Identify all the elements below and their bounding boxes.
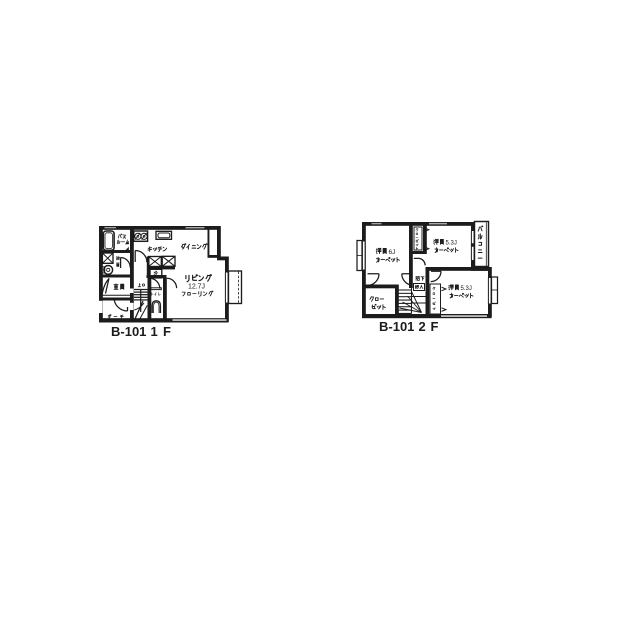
svg-text:2: 2 xyxy=(419,319,426,334)
svg-text:1: 1 xyxy=(151,324,158,339)
svg-text:5.3J: 5.3J xyxy=(446,241,457,247)
svg-text:F: F xyxy=(163,324,171,339)
svg-text:B-101: B-101 xyxy=(111,324,146,339)
svg-text:F: F xyxy=(431,319,439,334)
svg-text:6J: 6J xyxy=(389,249,396,256)
svg-text:12.7J: 12.7J xyxy=(188,284,205,291)
svg-text:B-101: B-101 xyxy=(379,319,414,334)
svg-text:5.3J: 5.3J xyxy=(461,286,472,292)
